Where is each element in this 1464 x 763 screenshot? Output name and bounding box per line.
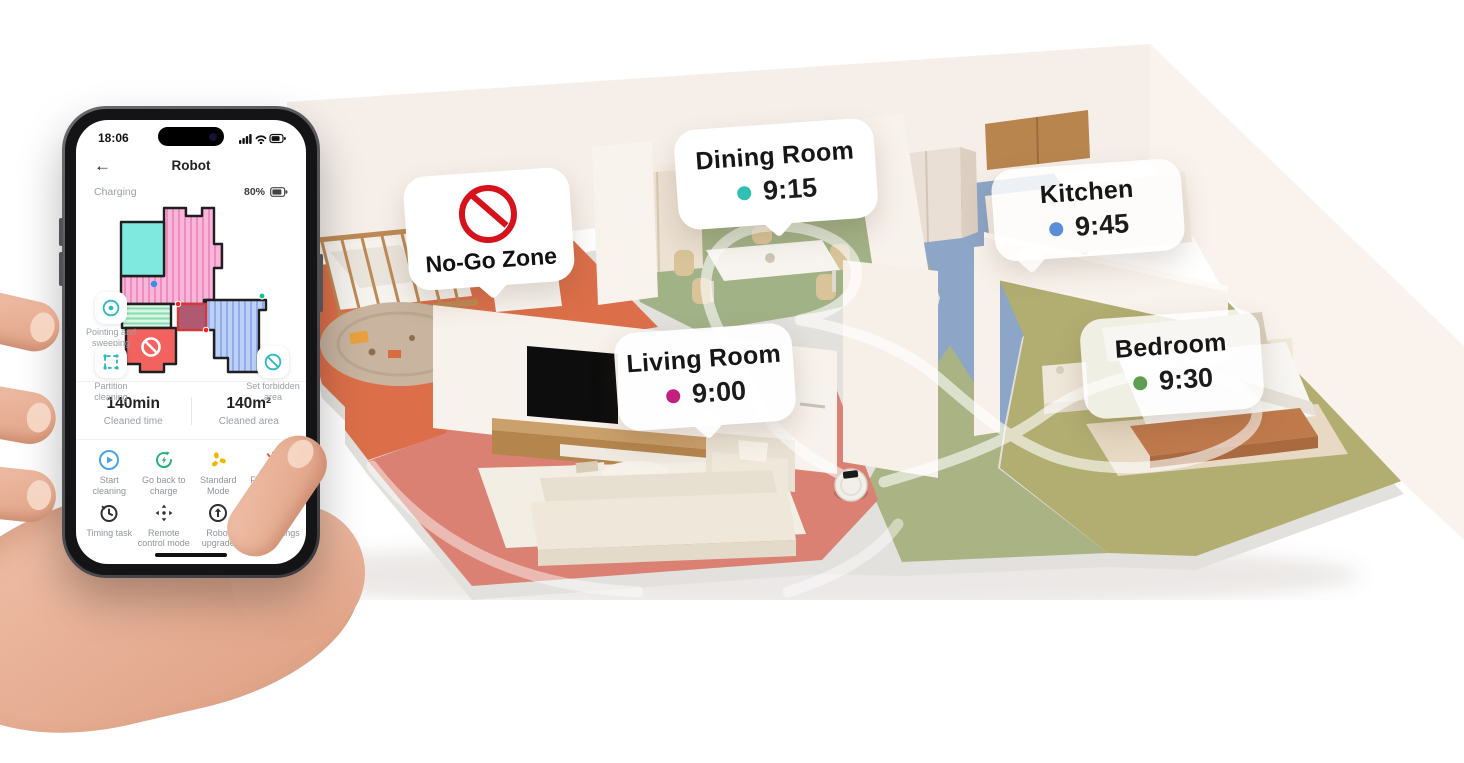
power-button[interactable] xyxy=(319,254,323,312)
no-go-zone-label: No-Go Zone xyxy=(402,166,576,291)
battery-icon xyxy=(270,187,288,197)
play-icon xyxy=(97,448,121,472)
schedule-dot xyxy=(666,388,681,403)
volume-down-button[interactable] xyxy=(59,252,63,286)
no-entry-icon xyxy=(262,351,284,373)
schedule-dot xyxy=(1133,375,1148,390)
start-cleaning-button[interactable]: Start cleaning xyxy=(82,448,137,497)
fingernail xyxy=(27,310,57,345)
charging-status: Charging xyxy=(94,186,239,198)
tool-set-forbidden-area[interactable]: Set forbidden area xyxy=(240,346,306,404)
page-title: Robot xyxy=(172,158,211,173)
target-icon xyxy=(100,297,122,319)
room-time: 9:45 xyxy=(1074,208,1130,243)
fingernail xyxy=(26,479,53,511)
schedule-dot xyxy=(737,185,752,200)
room-name: Bedroom xyxy=(1114,328,1228,365)
status-time: 18:06 xyxy=(98,131,129,145)
robot-vacuum xyxy=(834,469,868,501)
dynamic-island xyxy=(158,127,224,146)
remote-control-button[interactable]: Remote control mode xyxy=(137,501,192,550)
tool-pointing-sweeping[interactable]: Pointing and sweeping xyxy=(78,292,144,350)
thumbnail xyxy=(282,435,319,473)
clock-icon xyxy=(97,501,121,525)
timing-task-button[interactable]: Timing task xyxy=(82,501,137,550)
standard-mode-button[interactable]: Standard Mode xyxy=(191,448,246,497)
back-button[interactable]: ← xyxy=(94,157,111,174)
camera-icon xyxy=(209,133,217,141)
room-time: 9:30 xyxy=(1158,362,1214,397)
fingernail xyxy=(24,401,53,435)
room-name: Kitchen xyxy=(1039,175,1135,210)
recharge-icon xyxy=(152,448,176,472)
dining-room-label: Dining Room 9:15 xyxy=(673,117,879,231)
no-go-zone-text: No-Go Zone xyxy=(425,242,558,278)
fan-icon xyxy=(206,448,230,472)
no-entry-icon xyxy=(457,183,519,245)
schedule-dot xyxy=(1049,221,1064,236)
room-time: 9:00 xyxy=(691,375,747,410)
living-room-label: Living Room 9:00 xyxy=(613,322,797,432)
bedroom-label: Bedroom 9:30 xyxy=(1079,308,1266,420)
status-bar: 18:06 xyxy=(76,120,306,151)
battery-icon xyxy=(270,135,286,143)
status-icons xyxy=(239,132,286,144)
home-indicator[interactable] xyxy=(155,553,227,557)
room-name: Dining Room xyxy=(695,137,855,177)
charging-dock xyxy=(797,384,828,412)
wall-nursery-dining xyxy=(592,141,658,305)
wifi-icon xyxy=(257,137,266,141)
stage: No-Go Zone Dining Room 9:15 Kitchen 9:45… xyxy=(0,0,1464,600)
dpad-icon xyxy=(152,501,176,525)
room-name: Living Room xyxy=(626,340,782,380)
battery-percent: 80% xyxy=(244,186,265,198)
charging-row: Charging 80% xyxy=(76,181,306,204)
room-time: 9:15 xyxy=(762,172,818,207)
volume-up-button[interactable] xyxy=(59,218,63,246)
go-back-to-charge-button[interactable]: Go back to charge xyxy=(137,448,192,497)
cleaning-map-section: Pointing and sweeping Partition cleaning xyxy=(76,204,306,382)
partition-icon xyxy=(100,351,122,373)
kitchen-label: Kitchen 9:45 xyxy=(990,157,1186,262)
tool-partition-cleaning[interactable]: Partition cleaning xyxy=(78,346,144,404)
nav-bar: ← Robot xyxy=(76,151,306,181)
